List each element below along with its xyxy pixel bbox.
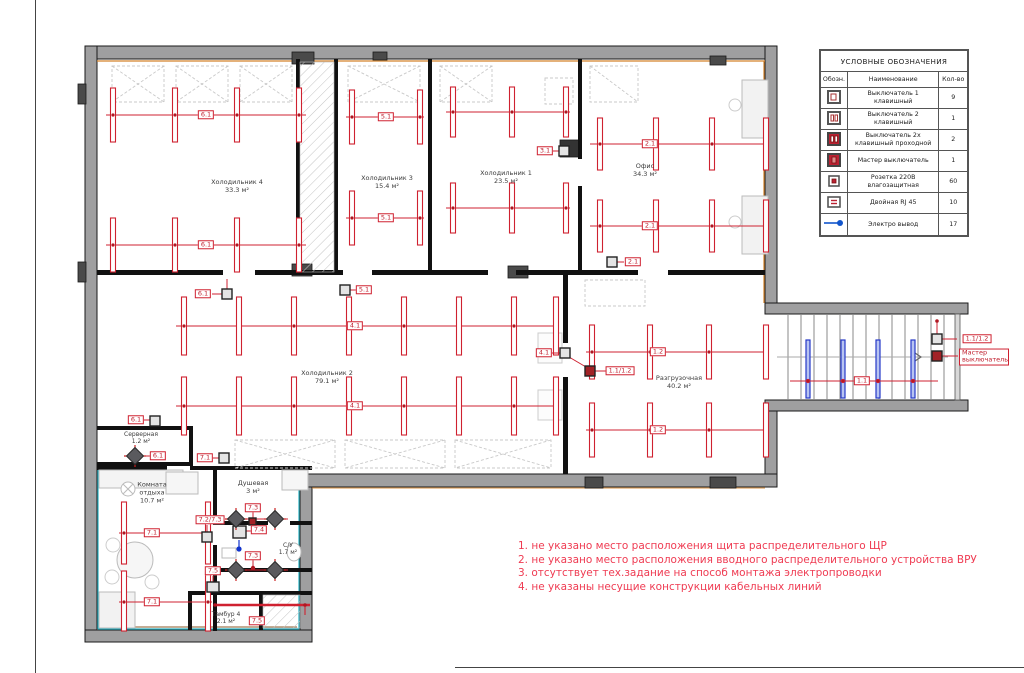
legend-row: Выключатель 2х клавишный проходной 2 — [821, 130, 968, 151]
switch-symbol-office — [607, 257, 617, 267]
circuit-label: 7.1 — [144, 528, 160, 537]
switch-callout-label: 1.1/1.2 — [606, 366, 635, 375]
circuit-label: 5.1 — [378, 112, 394, 121]
switch-callout-label: 1.1/1.2 — [963, 334, 992, 343]
circuit-label: 6.1 — [198, 110, 214, 119]
switch-symbol-hall1 — [559, 146, 569, 156]
legend-col-symbol: Обозн. — [821, 72, 848, 88]
stairs-light-bars — [806, 340, 915, 398]
circuit-label: 4.1 — [347, 321, 363, 330]
lighting-run-hall2-2 — [176, 377, 559, 435]
legend-title: УСЛОВНЫЕ ОБОЗНАЧЕНИЯ — [821, 51, 968, 72]
switch-callout-label: 6.1 — [195, 289, 211, 298]
room-label-shower: Душевая3 м² — [238, 480, 269, 496]
note-line: 2. не указано место расположения вводног… — [518, 554, 977, 568]
room-label-tambour: Тамбур 42.1 м² — [212, 611, 241, 625]
switch-callout-label: 7.5 — [249, 616, 265, 625]
electric-outlet-symbol — [236, 540, 241, 552]
symbol-75 — [207, 582, 219, 592]
switch-1-key-icon — [825, 90, 843, 104]
room-label-hall2: Холодильник 279.1 м² — [301, 370, 353, 386]
master-switch-label: Мастер выключатель — [959, 349, 1009, 366]
master-switch-symbol — [932, 351, 942, 361]
circuit-label: 1.2 — [650, 347, 666, 356]
room-label-unload: Разгрузочная40.2 м² — [656, 375, 702, 391]
circuit-label: 2.1 — [642, 139, 658, 148]
note-line: 4. не указаны несущие конструкции кабель… — [518, 581, 977, 595]
room-label-hall3: Холодильник 315.4 м² — [361, 175, 413, 191]
room-label-hall1: Холодильник 123.5 м² — [480, 170, 532, 186]
circuit-label: 1.1 — [854, 376, 870, 385]
master-switch-icon — [825, 153, 843, 167]
lighting-run-hall2-1 — [176, 297, 559, 355]
socket-callout-label: 6.1 — [150, 451, 166, 460]
socket-220v-icon — [825, 174, 843, 188]
circuit-label: 1.2 — [650, 425, 666, 434]
circuit-label: 4.1 — [347, 401, 363, 410]
double-rj45-icon — [825, 195, 843, 209]
symbol-73b — [251, 566, 255, 570]
switch-callout-label: 7.5 — [205, 566, 221, 575]
circuit-label: 6.1 — [198, 240, 214, 249]
switch-2-key-icon — [825, 111, 843, 125]
junction-box-symbol — [233, 526, 246, 538]
note-line: 3. отсутствует тех.задание на способ мон… — [518, 567, 977, 581]
circuit-label: 2.1 — [642, 221, 658, 230]
room-label-hall4: Холодильник 433.3 м² — [211, 179, 263, 195]
switch-2-key-pass-icon — [825, 132, 843, 146]
switch-symbol-hall2 — [560, 348, 570, 358]
legend-row: Двойная RJ 45 10 — [821, 193, 968, 214]
switch-callout-label: 7.3 — [245, 551, 261, 560]
legend-col-name: Наименование — [847, 72, 939, 88]
legend-table: УСЛОВНЫЕ ОБОЗНАЧЕНИЯ Обозн. Наименование… — [820, 50, 968, 236]
legend-row: Розетка 220В влагозащитная 60 — [821, 172, 968, 193]
electric-outlet-line-icon — [823, 217, 845, 229]
switch-callout-label: 2.1 — [625, 257, 641, 266]
switch-callout-label: 3.1 — [537, 146, 553, 155]
switch-symbol-lounge — [219, 453, 229, 463]
legend-row: Выключатель 1 клавишный 9 — [821, 88, 968, 109]
room-label-server: Серверная1.2 м² — [124, 431, 158, 445]
lighting-run-hall1-2 — [446, 183, 570, 233]
legend-row: Мастер выключатель 1 — [821, 151, 968, 172]
switch-callout-label: 6.1 — [128, 415, 144, 424]
staircase — [777, 314, 948, 400]
remarks-notes: 1. не указано место расположения щита ра… — [518, 540, 977, 594]
switch-callout-label: 5.1 — [356, 285, 372, 294]
circuit-label: 5.1 — [378, 213, 394, 222]
switch-callout-label: 7.3 — [245, 503, 261, 512]
switch-callout-label: 7.2/7.3 — [196, 515, 225, 524]
switch-symbol-combo — [585, 366, 595, 376]
room-label-lounge: Комната отдыха10.7 м² — [127, 481, 177, 504]
legend-row: Выключатель 2 клавишный 1 — [821, 109, 968, 130]
legend-col-qty: Кол-во — [939, 72, 968, 88]
symbol-73a — [249, 518, 256, 525]
switch-symbol-hall3 — [340, 285, 350, 295]
switch-callout-label: 7.4 — [251, 525, 267, 534]
switch-symbol-stairs — [932, 334, 942, 344]
switch-callout-label: 4.1 — [536, 348, 552, 357]
circuit-label: 7.1 — [144, 597, 160, 606]
switch-callout-label: 7.1 — [197, 453, 213, 462]
room-label-wc: С/У1.7 м² — [279, 542, 297, 556]
note-line: 1. не указано место расположения щита ра… — [518, 540, 977, 554]
switch-symbol-hall4 — [222, 289, 232, 299]
switch-symbol-shower — [202, 532, 212, 542]
switch-symbol-server — [150, 416, 160, 426]
lighting-run-unload-2 — [586, 403, 769, 457]
lighting-run-hall1-1 — [446, 87, 570, 137]
floor-plan-drawing: 6.1 6.1 5.1 5.1 2.1 2.1 4.1 4.1 1.2 1.2 … — [0, 0, 1024, 673]
legend-row: Электро вывод 17 — [821, 214, 968, 236]
room-label-office: Офис34.3 м² — [633, 163, 657, 179]
